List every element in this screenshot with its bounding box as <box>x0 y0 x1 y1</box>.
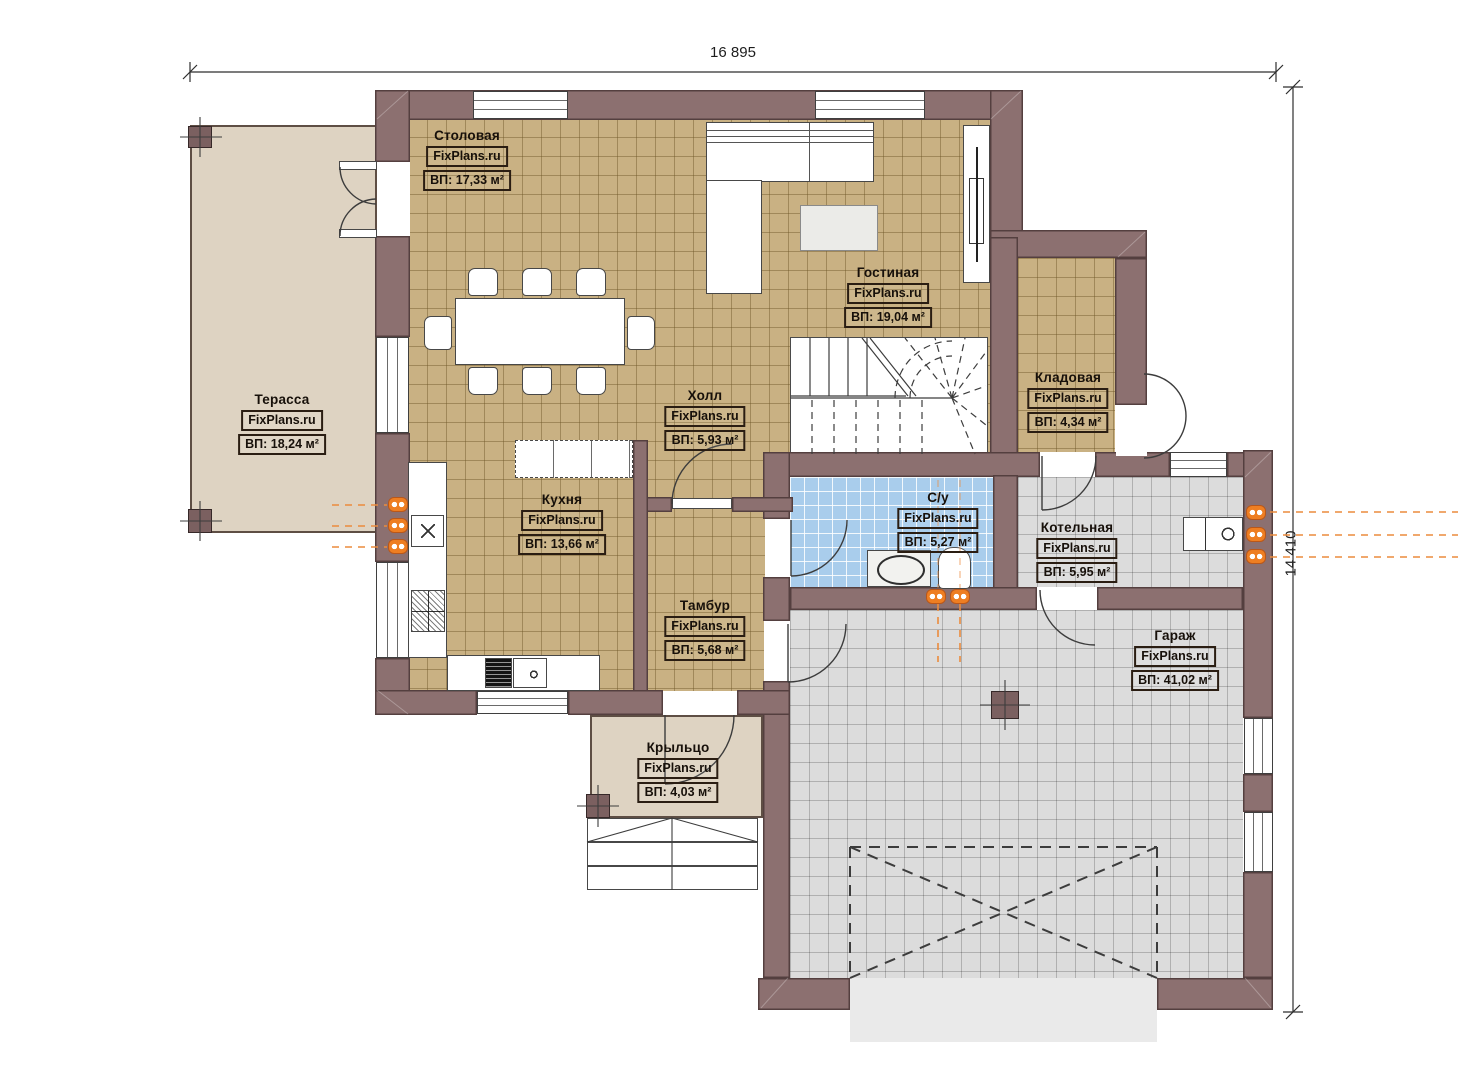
room-label-su: С/у FixPlans.ru ВП: 5,27 м² <box>897 490 978 553</box>
sink-unit <box>513 658 547 688</box>
porch-step <box>587 866 758 890</box>
wall-segment <box>763 681 790 978</box>
room-watermark: FixPlans.ru <box>1036 538 1117 559</box>
door-leaf <box>339 229 377 238</box>
room-name: Тамбур <box>664 598 745 613</box>
wall-segment <box>990 237 1018 475</box>
door-leaf <box>339 161 377 170</box>
room-area: ВП: 41,02 м² <box>1131 670 1219 691</box>
room-watermark: FixPlans.ru <box>426 146 507 167</box>
window <box>1244 812 1273 872</box>
room-name: С/у <box>897 490 978 505</box>
dining-chair <box>627 316 655 350</box>
room-area: ВП: 19,04 м² <box>844 307 932 328</box>
radiator <box>1246 549 1266 564</box>
room-name: Кладовая <box>1027 370 1108 385</box>
dining-chair <box>522 268 552 296</box>
room-area: ВП: 5,95 м² <box>1037 562 1118 583</box>
door-opening <box>663 691 737 714</box>
wall-segment <box>375 236 410 337</box>
wall-segment <box>1157 978 1273 1010</box>
wall-segment <box>732 497 793 512</box>
wall-segment <box>765 452 1040 477</box>
radiator <box>1246 527 1266 542</box>
dishwasher <box>485 658 512 688</box>
room-watermark: FixPlans.ru <box>897 508 978 529</box>
wall-segment <box>758 978 850 1010</box>
window <box>376 562 409 658</box>
porch-step <box>587 842 758 866</box>
terrace-deck <box>190 125 377 533</box>
door-opening <box>764 621 790 681</box>
sink-bowl <box>877 555 925 585</box>
room-area: ВП: 17,33 м² <box>423 170 511 191</box>
radiator <box>388 497 408 512</box>
room-area: ВП: 5,93 м² <box>665 430 746 451</box>
dining-chair <box>576 367 606 395</box>
staircase <box>790 337 988 455</box>
dimension-top: 16 895 <box>693 44 773 61</box>
radiator <box>388 518 408 533</box>
kitchen-island <box>515 440 633 478</box>
dining-table <box>455 298 625 365</box>
room-watermark: FixPlans.ru <box>847 283 928 304</box>
radiator <box>926 589 946 604</box>
room-watermark: FixPlans.ru <box>521 510 602 531</box>
room-name: Кухня <box>518 492 606 507</box>
room-name: Крыльцо <box>637 740 718 755</box>
room-watermark: FixPlans.ru <box>1027 388 1108 409</box>
room-watermark: FixPlans.ru <box>637 758 718 779</box>
room-label-tambur: Тамбур FixPlans.ru ВП: 5,68 м² <box>664 598 745 661</box>
room-name: Столовая <box>423 128 511 143</box>
window <box>815 91 925 119</box>
wall-segment <box>1115 258 1147 405</box>
vanity <box>867 550 931 587</box>
radiator <box>950 589 970 604</box>
dining-chair <box>522 367 552 395</box>
room-area: ВП: 4,03 м² <box>638 782 719 803</box>
terrace-post <box>188 509 212 533</box>
room-watermark: FixPlans.ru <box>664 406 745 427</box>
room-label-kladovaya: Кладовая FixPlans.ru ВП: 4,34 м² <box>1027 370 1108 433</box>
dining-chair <box>424 316 452 350</box>
room-name: Холл <box>664 388 745 403</box>
door-opening <box>1116 405 1147 456</box>
dining-chair <box>468 367 498 395</box>
dining-chair <box>468 268 498 296</box>
floor-plan-canvas: 16 895 14 410 Столовая FixPlans.ru ВП: 1… <box>0 0 1473 1080</box>
wall-segment <box>790 587 1037 610</box>
room-area: ВП: 5,68 м² <box>665 640 746 661</box>
window <box>473 91 568 119</box>
porch-step <box>587 818 758 842</box>
sofa <box>706 122 874 182</box>
toilet <box>938 547 971 589</box>
room-name: Терасса <box>238 392 326 407</box>
room-label-holl: Холл FixPlans.ru ВП: 5,93 м² <box>664 388 745 451</box>
window <box>477 691 568 714</box>
room-name: Гараж <box>1131 628 1219 643</box>
door-leaf <box>672 498 732 509</box>
room-area: ВП: 13,66 м² <box>518 534 606 555</box>
wall-segment <box>1243 872 1273 978</box>
room-label-gostinaya: Гостиная FixPlans.ru ВП: 19,04 м² <box>844 265 932 328</box>
room-label-garazh: Гараж FixPlans.ru ВП: 41,02 м² <box>1131 628 1219 691</box>
room-label-kotelnaya: Котельная FixPlans.ru ВП: 5,95 м² <box>1036 520 1117 583</box>
wall-segment <box>375 690 477 715</box>
window <box>1170 452 1227 477</box>
garage-column <box>991 691 1019 719</box>
radiator <box>1246 505 1266 520</box>
room-label-terassa: Терасса FixPlans.ru ВП: 18,24 м² <box>238 392 326 455</box>
wall-unit-inner <box>969 178 984 244</box>
room-name: Гостиная <box>844 265 932 280</box>
room-area: ВП: 18,24 м² <box>238 434 326 455</box>
boiler-unit <box>1183 517 1243 551</box>
wall-segment <box>1243 450 1273 718</box>
wall-segment <box>1243 774 1273 812</box>
door-opening <box>765 519 791 577</box>
wall-segment <box>568 690 663 715</box>
sofa-chaise <box>706 180 762 294</box>
wall-segment <box>990 90 1023 237</box>
dining-chair <box>576 268 606 296</box>
wall-unit <box>963 125 990 283</box>
room-watermark: FixPlans.ru <box>241 410 322 431</box>
room-label-stolovaya: Столовая FixPlans.ru ВП: 17,33 м² <box>423 128 511 191</box>
room-area: ВП: 4,34 м² <box>1028 412 1109 433</box>
door-opening <box>1041 453 1095 476</box>
kitchen-sink <box>411 515 444 547</box>
terrace-post <box>188 126 212 148</box>
room-label-krylco: Крыльцо FixPlans.ru ВП: 4,03 м² <box>637 740 718 803</box>
room-watermark: FixPlans.ru <box>1134 646 1215 667</box>
dimension-right: 14 410 <box>1283 509 1300 599</box>
window <box>376 337 409 433</box>
radiator <box>388 539 408 554</box>
room-area: ВП: 5,27 м² <box>898 532 979 553</box>
wall-segment <box>763 577 790 621</box>
garage-apron <box>850 978 1157 1042</box>
porch-post <box>586 794 610 818</box>
room-name: Котельная <box>1036 520 1117 535</box>
coffee-table <box>800 205 878 251</box>
wall-segment <box>737 690 790 715</box>
door-opening <box>377 162 410 236</box>
room-watermark: FixPlans.ru <box>664 616 745 637</box>
wall-segment <box>633 440 648 697</box>
wall-segment <box>1097 587 1243 610</box>
room-label-kuhnya: Кухня FixPlans.ru ВП: 13,66 м² <box>518 492 606 555</box>
window <box>1244 718 1273 774</box>
wall-segment <box>375 90 410 162</box>
stove <box>411 590 445 632</box>
door-opening <box>1038 588 1096 609</box>
